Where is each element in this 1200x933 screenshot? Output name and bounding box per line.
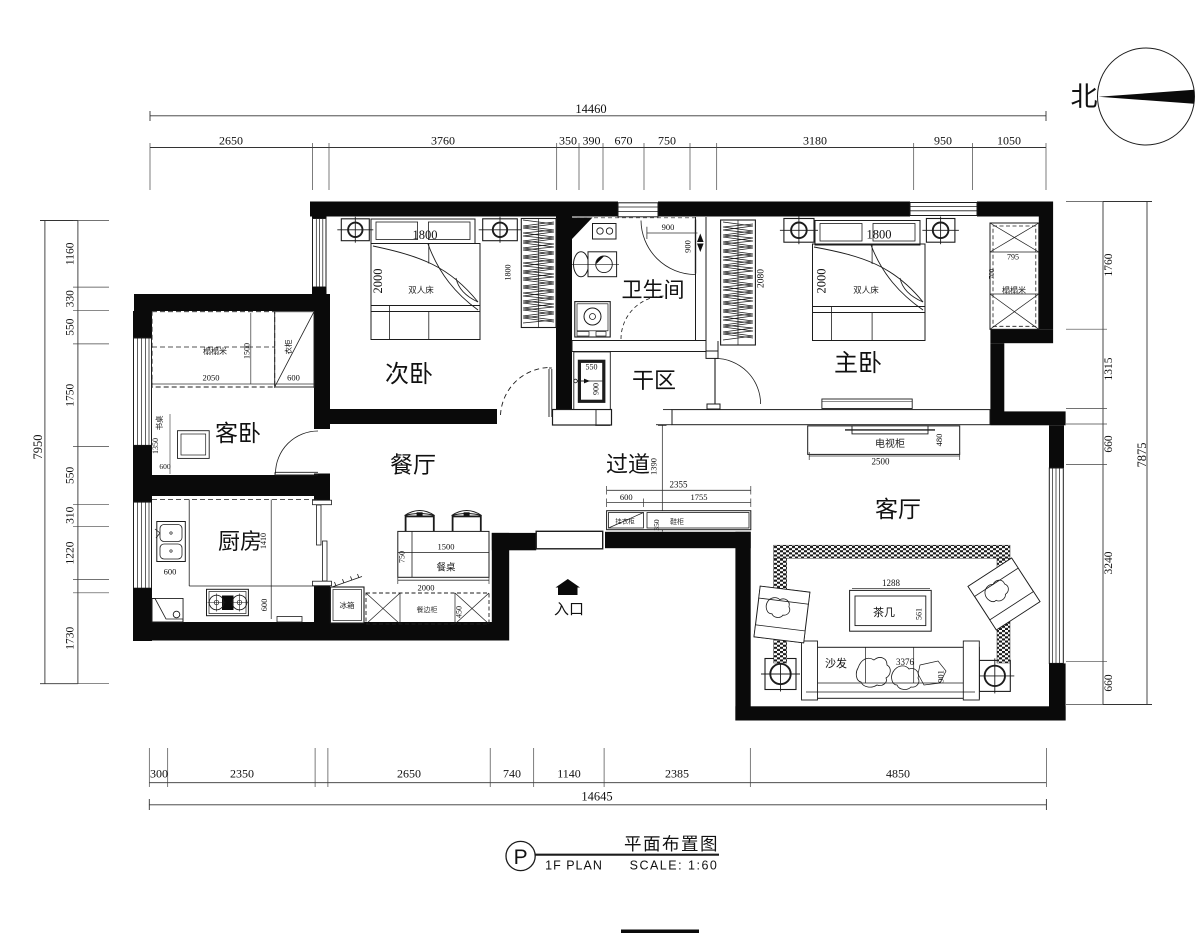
svg-text:衣柜: 衣柜 — [283, 339, 293, 354]
svg-text:1350: 1350 — [151, 438, 160, 454]
svg-text:550: 550 — [586, 363, 598, 372]
svg-text:电视柜: 电视柜 — [875, 437, 905, 450]
svg-text:3240: 3240 — [1103, 551, 1115, 574]
svg-text:平面布置图: 平面布置图 — [624, 834, 719, 854]
svg-text:700: 700 — [988, 268, 996, 279]
svg-text:榻榻米: 榻榻米 — [1002, 285, 1026, 295]
svg-text:2385: 2385 — [665, 767, 689, 781]
svg-text:2650: 2650 — [397, 767, 421, 781]
svg-text:600: 600 — [287, 373, 300, 383]
svg-text:主卧: 主卧 — [834, 350, 882, 377]
svg-text:670: 670 — [615, 134, 633, 148]
svg-text:1800: 1800 — [867, 228, 892, 242]
svg-text:750: 750 — [658, 134, 676, 148]
svg-text:挂衣柜: 挂衣柜 — [615, 517, 635, 526]
svg-text:4850: 4850 — [886, 767, 910, 781]
svg-text:2355: 2355 — [670, 480, 689, 490]
svg-text:1750: 1750 — [65, 383, 77, 406]
svg-text:660: 660 — [1103, 435, 1115, 453]
svg-text:1140: 1140 — [557, 767, 581, 781]
svg-text:1800: 1800 — [413, 228, 438, 242]
svg-text:660: 660 — [1103, 674, 1115, 692]
svg-text:餐边柜: 餐边柜 — [417, 605, 438, 614]
svg-text:310: 310 — [65, 506, 77, 524]
svg-text:双人床: 双人床 — [853, 285, 879, 295]
svg-text:鞋柜: 鞋柜 — [670, 517, 684, 526]
svg-text:7950: 7950 — [31, 435, 45, 460]
svg-text:北: 北 — [1071, 82, 1098, 112]
svg-text:390: 390 — [583, 134, 601, 148]
svg-text:561: 561 — [915, 608, 924, 620]
svg-text:350: 350 — [559, 134, 577, 148]
svg-text:1410: 1410 — [259, 533, 268, 549]
svg-text:600: 600 — [620, 492, 633, 502]
svg-text:900: 900 — [592, 383, 601, 395]
svg-text:14645: 14645 — [581, 790, 612, 804]
svg-text:卫生间: 卫生间 — [622, 279, 685, 302]
svg-text:600: 600 — [159, 462, 171, 471]
svg-text:350: 350 — [652, 519, 661, 531]
svg-text:600: 600 — [259, 599, 269, 612]
svg-text:书桌: 书桌 — [154, 415, 164, 430]
svg-text:双人床: 双人床 — [408, 285, 434, 295]
svg-text:14460: 14460 — [575, 102, 606, 116]
svg-text:550: 550 — [65, 318, 77, 336]
svg-text:餐桌: 餐桌 — [436, 562, 456, 574]
svg-text:2650: 2650 — [219, 134, 243, 148]
svg-text:3376: 3376 — [896, 657, 915, 667]
svg-text:901: 901 — [936, 670, 946, 683]
svg-text:次卧: 次卧 — [385, 361, 433, 388]
svg-text:2080: 2080 — [756, 269, 766, 288]
svg-text:冰箱: 冰箱 — [340, 600, 355, 610]
svg-text:330: 330 — [65, 290, 77, 308]
svg-text:2500: 2500 — [872, 457, 891, 467]
svg-text:1F PLAN: 1F PLAN — [545, 859, 603, 873]
svg-text:950: 950 — [934, 134, 952, 148]
svg-text:480: 480 — [934, 434, 944, 447]
svg-text:1760: 1760 — [1103, 253, 1115, 276]
svg-text:2000: 2000 — [815, 269, 829, 294]
svg-text:茶几: 茶几 — [873, 606, 895, 619]
svg-text:750: 750 — [398, 551, 407, 563]
svg-text:榻榻米: 榻榻米 — [203, 346, 227, 356]
svg-text:2350: 2350 — [230, 767, 254, 781]
svg-text:795: 795 — [1007, 253, 1019, 262]
svg-text:300: 300 — [150, 767, 168, 781]
svg-text:1220: 1220 — [65, 541, 77, 564]
svg-text:1730: 1730 — [65, 627, 77, 650]
svg-text:2000: 2000 — [371, 269, 385, 294]
svg-text:2000: 2000 — [418, 583, 435, 593]
svg-text:过道: 过道 — [606, 452, 650, 477]
svg-text:1050: 1050 — [997, 134, 1021, 148]
svg-text:1315: 1315 — [1103, 357, 1115, 380]
svg-text:450: 450 — [455, 606, 464, 618]
svg-text:P: P — [514, 846, 528, 869]
svg-text:客卧: 客卧 — [215, 420, 261, 446]
svg-text:3760: 3760 — [431, 134, 455, 148]
svg-text:餐厅: 餐厅 — [390, 452, 436, 478]
svg-text:干区: 干区 — [632, 368, 676, 393]
svg-text:1800: 1800 — [504, 265, 513, 281]
svg-text:600: 600 — [164, 567, 177, 577]
svg-text:740: 740 — [503, 767, 521, 781]
svg-text:900: 900 — [683, 240, 693, 253]
svg-text:1755: 1755 — [691, 492, 708, 502]
svg-text:900: 900 — [662, 222, 675, 232]
svg-text:沙发: 沙发 — [825, 656, 847, 670]
svg-text:550: 550 — [65, 467, 77, 485]
svg-text:7875: 7875 — [1135, 443, 1149, 468]
svg-text:3180: 3180 — [803, 134, 827, 148]
svg-text:1160: 1160 — [65, 242, 77, 265]
svg-text:1500: 1500 — [438, 542, 455, 552]
svg-text:1390: 1390 — [649, 458, 659, 475]
svg-text:2050: 2050 — [203, 373, 220, 383]
svg-text:1500: 1500 — [243, 343, 252, 359]
svg-text:入口: 入口 — [554, 601, 584, 618]
svg-text:SCALE: 1:60: SCALE: 1:60 — [630, 859, 719, 873]
svg-text:客厅: 客厅 — [875, 496, 921, 522]
svg-text:1288: 1288 — [882, 578, 901, 588]
svg-text:厨房: 厨房 — [218, 529, 262, 554]
